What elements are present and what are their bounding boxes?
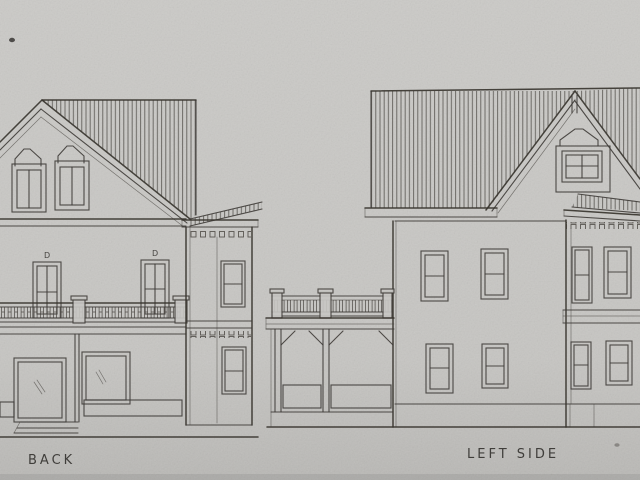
left-side-label: LEFT SIDE xyxy=(467,447,559,462)
door-mark: D xyxy=(44,251,50,260)
rail-post-cap xyxy=(71,296,87,300)
balusters xyxy=(272,300,392,312)
dentil-band xyxy=(187,231,251,238)
dentil-band xyxy=(187,331,251,338)
blueprint-sheet: D D xyxy=(0,0,640,480)
rail-post xyxy=(320,292,331,318)
rail-post xyxy=(175,299,187,323)
ink-speck xyxy=(614,443,619,447)
ink-speck xyxy=(9,38,15,42)
door-mark: D xyxy=(152,249,158,258)
dentil-band xyxy=(566,222,640,229)
rail-post-cap xyxy=(318,289,333,293)
back-label: BACK xyxy=(28,453,75,468)
balusters xyxy=(0,307,186,318)
rail-post-cap xyxy=(270,289,284,293)
sheet-edge-shadow xyxy=(0,474,640,480)
rail-post xyxy=(272,292,282,318)
elevation-drawing: D D xyxy=(0,0,640,480)
rail-post xyxy=(73,299,85,323)
rail-post xyxy=(383,292,392,318)
rail-post-cap xyxy=(381,289,394,293)
